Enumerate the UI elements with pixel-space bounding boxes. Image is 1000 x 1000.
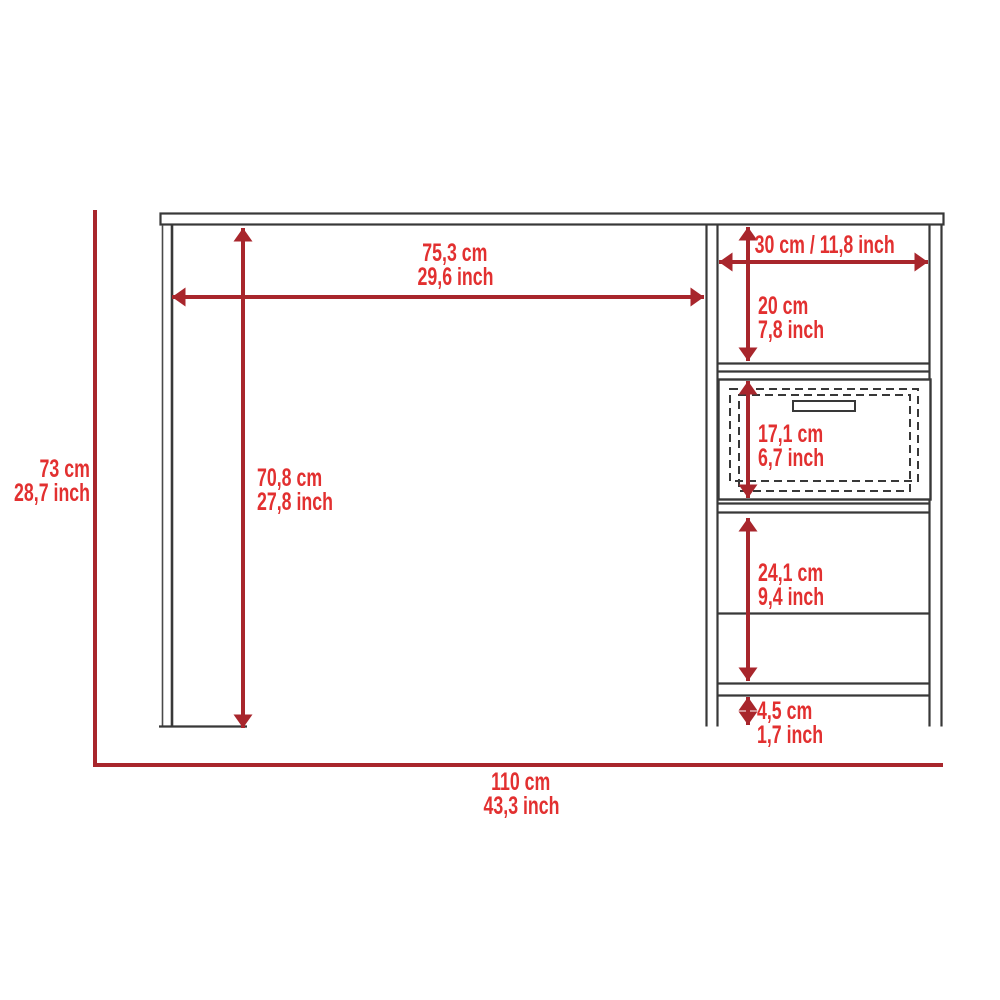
diagram-stage: 75,3 cm 29,6 inch 30 cm / 11,8 inch 20 c… <box>0 0 1000 1000</box>
label-drawer-height: 17,1 cm 6,7 inch <box>758 422 851 470</box>
label-overall-width: 110 cm 43,3 inch <box>371 770 671 818</box>
desk-diagram-canvas <box>0 0 1000 1000</box>
label-cabinet-width: 30 cm / 11,8 inch <box>718 233 932 257</box>
label-upper-shelf-height: 20 cm 7,8 inch <box>758 294 851 342</box>
label-overall-height: 73 cm 28,7 inch <box>0 457 90 505</box>
label-leg-clear-height: 70,8 cm 27,8 inch <box>257 466 364 514</box>
drawer-handle <box>793 401 855 411</box>
desktop-board <box>161 214 944 225</box>
label-lower-shelf-height: 24,1 cm 9,4 inch <box>758 561 851 609</box>
label-desktop-clear-width: 75,3 cm 29,6 inch <box>305 241 605 289</box>
label-base-height: 4,5 cm 1,7 inch <box>757 699 850 747</box>
